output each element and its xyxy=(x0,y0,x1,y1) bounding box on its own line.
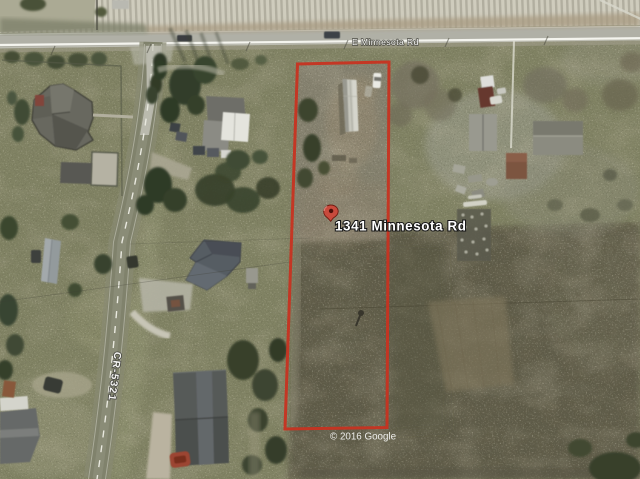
svg-text:© 2016 Google: © 2016 Google xyxy=(330,432,397,443)
svg-text:1341 Minnesota Rd: 1341 Minnesota Rd xyxy=(335,218,467,233)
svg-text:E Minnesota Rd: E Minnesota Rd xyxy=(352,37,419,47)
